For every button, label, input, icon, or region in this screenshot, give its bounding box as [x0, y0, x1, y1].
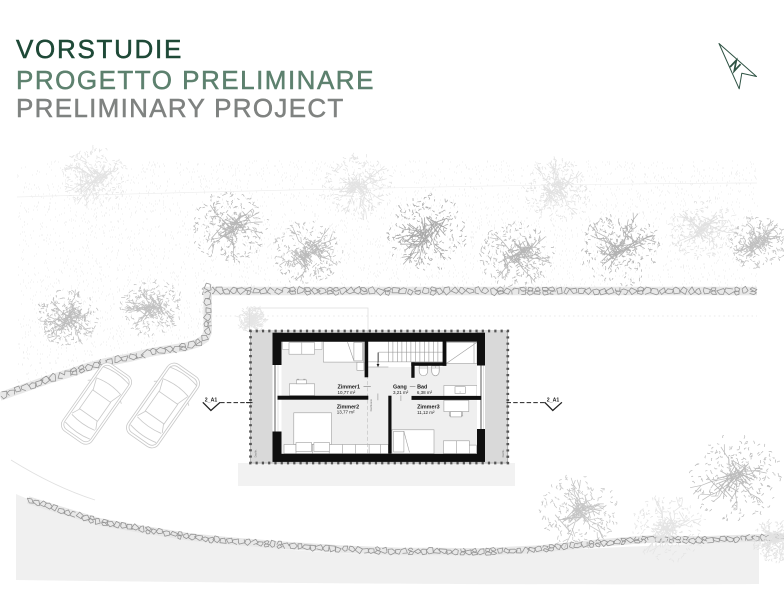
svg-text:10,77 m²: 10,77 m² [338, 390, 356, 395]
svg-text:Dachk.: Dachk. [501, 449, 505, 457]
svg-text:3,21 m²: 3,21 m² [393, 390, 409, 395]
svg-text:PRELIMINARY PROJECT: PRELIMINARY PROJECT [16, 93, 345, 123]
svg-text:Dachk.: Dachk. [253, 449, 257, 457]
svg-text:Dachkante: Dachkante [369, 398, 373, 411]
svg-text:6,38 m²: 6,38 m² [417, 390, 433, 395]
svg-text:PROGETTO PRELIMINARE: PROGETTO PRELIMINARE [16, 65, 375, 95]
svg-text:VORSTUDIE: VORSTUDIE [16, 34, 183, 64]
svg-text:11,12 m²: 11,12 m² [417, 410, 435, 415]
svg-text:2_A1: 2_A1 [205, 398, 218, 404]
svg-text:2_A1: 2_A1 [547, 398, 560, 404]
svg-text:13,77 m²: 13,77 m² [337, 410, 355, 415]
